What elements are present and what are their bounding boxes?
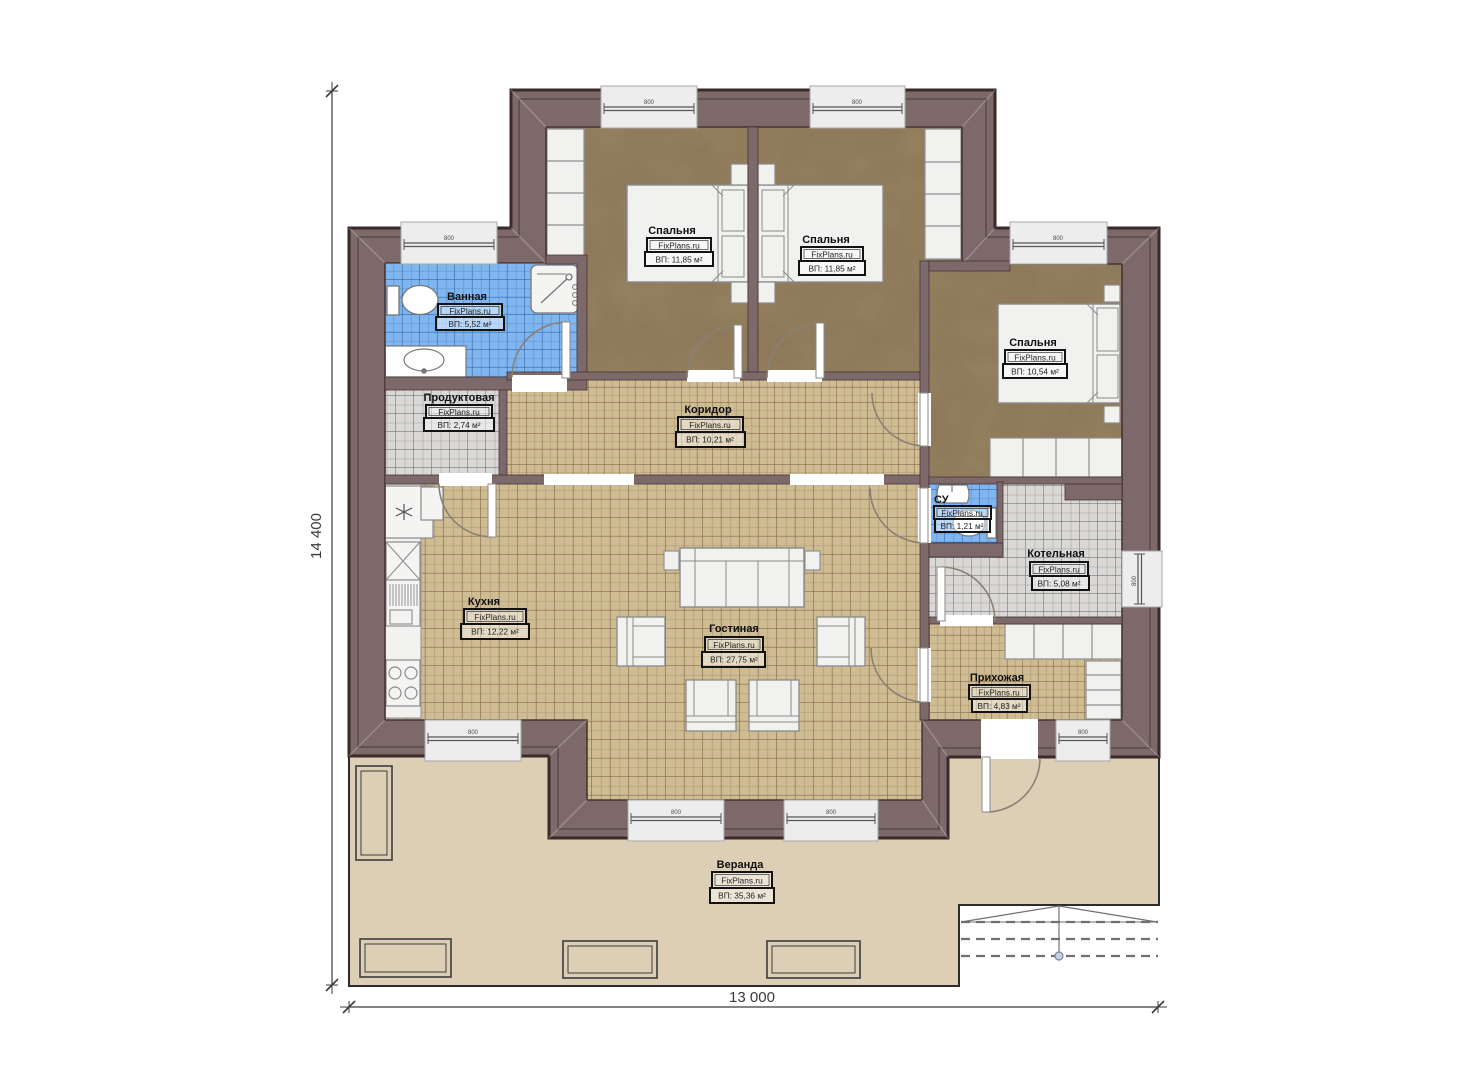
svg-text:FixPlans.ru: FixPlans.ru [978, 688, 1020, 698]
svg-text:ВП: 10,21 м²: ВП: 10,21 м² [686, 435, 734, 445]
svg-text:800: 800 [826, 810, 837, 816]
svg-text:ВП: 11,85 м²: ВП: 11,85 м² [808, 264, 855, 274]
svg-text:ВП: 5,08 м²: ВП: 5,08 м² [1037, 579, 1080, 589]
svg-text:Спальня: Спальня [802, 234, 850, 246]
svg-text:ВП: 4,83 м²: ВП: 4,83 м² [977, 701, 1020, 711]
svg-text:14 400: 14 400 [308, 513, 325, 559]
svg-text:FixPlans.ru: FixPlans.ru [689, 420, 731, 430]
svg-text:ВП: 10,54 м²: ВП: 10,54 м² [1011, 367, 1059, 377]
svg-text:800: 800 [852, 100, 863, 106]
svg-text:ВП: 35,36 м²: ВП: 35,36 м² [718, 891, 766, 901]
svg-text:ВП: 12,22 м²: ВП: 12,22 м² [471, 627, 519, 637]
svg-text:800: 800 [1078, 730, 1089, 736]
svg-text:Прихожая: Прихожая [970, 672, 1024, 684]
svg-text:Спальня: Спальня [1009, 337, 1057, 349]
svg-text:Гостиная: Гостиная [709, 623, 759, 635]
svg-text:800: 800 [468, 730, 479, 736]
svg-text:Котельная: Котельная [1027, 548, 1085, 560]
svg-text:800: 800 [1053, 236, 1064, 242]
svg-text:ВП: 2,74 м²: ВП: 2,74 м² [437, 420, 480, 430]
svg-text:Веранда: Веранда [717, 859, 765, 871]
svg-text:Коридор: Коридор [684, 404, 732, 416]
svg-text:FixPlans.ru: FixPlans.ru [713, 640, 755, 650]
svg-text:FixPlans.ru: FixPlans.ru [721, 876, 763, 886]
svg-text:FixPlans.ru: FixPlans.ru [438, 407, 480, 417]
svg-text:800: 800 [444, 236, 455, 242]
svg-text:Ванная: Ванная [447, 291, 487, 303]
svg-text:FixPlans.ru: FixPlans.ru [474, 612, 516, 622]
svg-text:FixPlans.ru: FixPlans.ru [811, 250, 853, 260]
svg-text:FixPlans.ru: FixPlans.ru [1038, 565, 1080, 575]
svg-text:Спальня: Спальня [648, 225, 696, 237]
svg-text:FixPlans.ru: FixPlans.ru [449, 306, 491, 316]
svg-text:СУ: СУ [934, 494, 949, 506]
svg-text:800: 800 [644, 100, 655, 106]
svg-text:ВП: 11,85 м²: ВП: 11,85 м² [655, 255, 702, 265]
svg-text:Продуктовая: Продуктовая [423, 392, 494, 404]
svg-text:13 000: 13 000 [729, 989, 775, 1006]
svg-text:ВП: 27,75 м²: ВП: 27,75 м² [710, 655, 758, 665]
svg-text:ВП: 1,21 м²: ВП: 1,21 м² [940, 521, 983, 531]
svg-text:FixPlans.ru: FixPlans.ru [941, 508, 983, 518]
svg-text:FixPlans.ru: FixPlans.ru [658, 241, 700, 251]
svg-text:FixPlans.ru: FixPlans.ru [1014, 353, 1056, 363]
svg-text:800: 800 [1132, 575, 1138, 586]
svg-text:ВП: 5,52 м²: ВП: 5,52 м² [448, 319, 491, 329]
svg-text:800: 800 [671, 810, 682, 816]
svg-text:Кухня: Кухня [468, 596, 500, 608]
